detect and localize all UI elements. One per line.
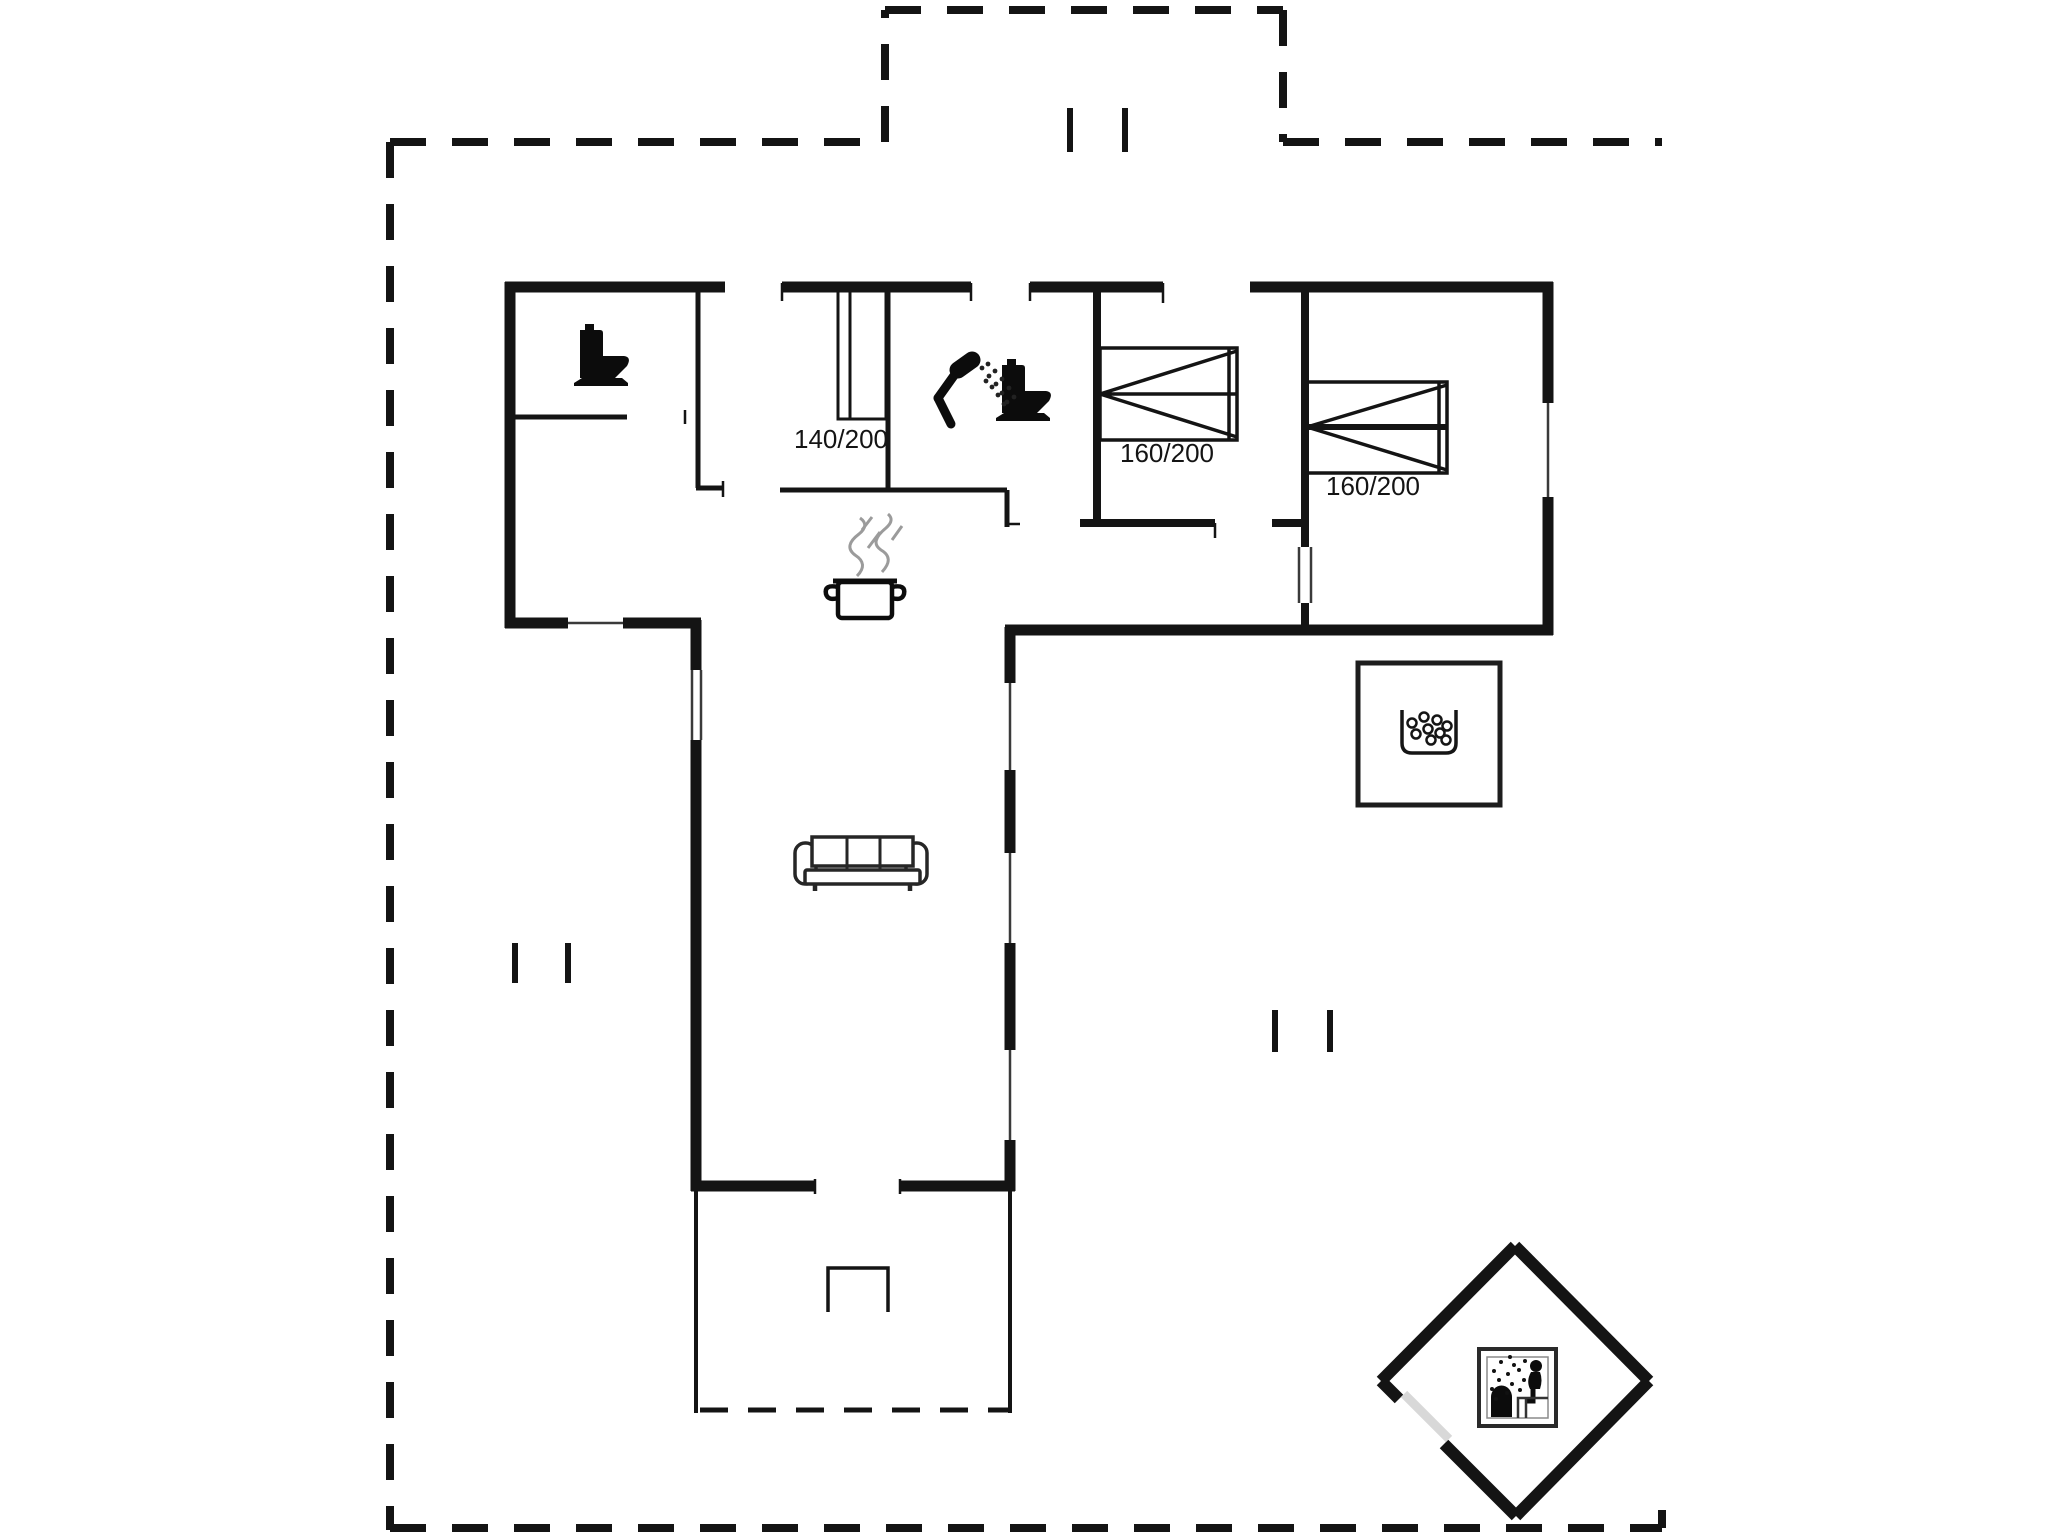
- steam-icon: [850, 514, 902, 576]
- entrance-marker-top: [1070, 108, 1125, 152]
- terrace: [696, 1191, 1010, 1413]
- cooking-pot-icon: [826, 581, 905, 618]
- terrace-step: [828, 1268, 888, 1312]
- hot-tub-room: [1358, 663, 1500, 805]
- entrance-marker-right: [1275, 1010, 1330, 1052]
- toilet-icon: [574, 324, 629, 386]
- bed-double-140: [838, 289, 886, 419]
- bed-140-label: 140/200: [794, 424, 888, 454]
- wall-hall-horizontal: [780, 490, 1007, 527]
- sofa-icon: [795, 837, 927, 891]
- bed-160-b-label: 160/200: [1326, 471, 1420, 501]
- floorplan-page: 140/200 160/200 160/200: [0, 0, 2048, 1536]
- sauna-door: [1404, 1394, 1449, 1439]
- floorplan-drawing: 140/200 160/200 160/200: [0, 0, 2048, 1536]
- entrance-marker-left: [515, 943, 568, 983]
- bed-double-160-b: [1307, 382, 1447, 473]
- bed-double-160-a: [1100, 348, 1237, 440]
- window-stem-left: [692, 670, 701, 740]
- door-bedroom2: [1299, 547, 1311, 603]
- sauna-icon: [1479, 1349, 1556, 1426]
- toilet-icon-2: [996, 359, 1051, 421]
- interior-walls-thin: [510, 287, 1007, 527]
- sauna-room: [1381, 1246, 1649, 1516]
- bed-160-a-label: 160/200: [1120, 438, 1214, 468]
